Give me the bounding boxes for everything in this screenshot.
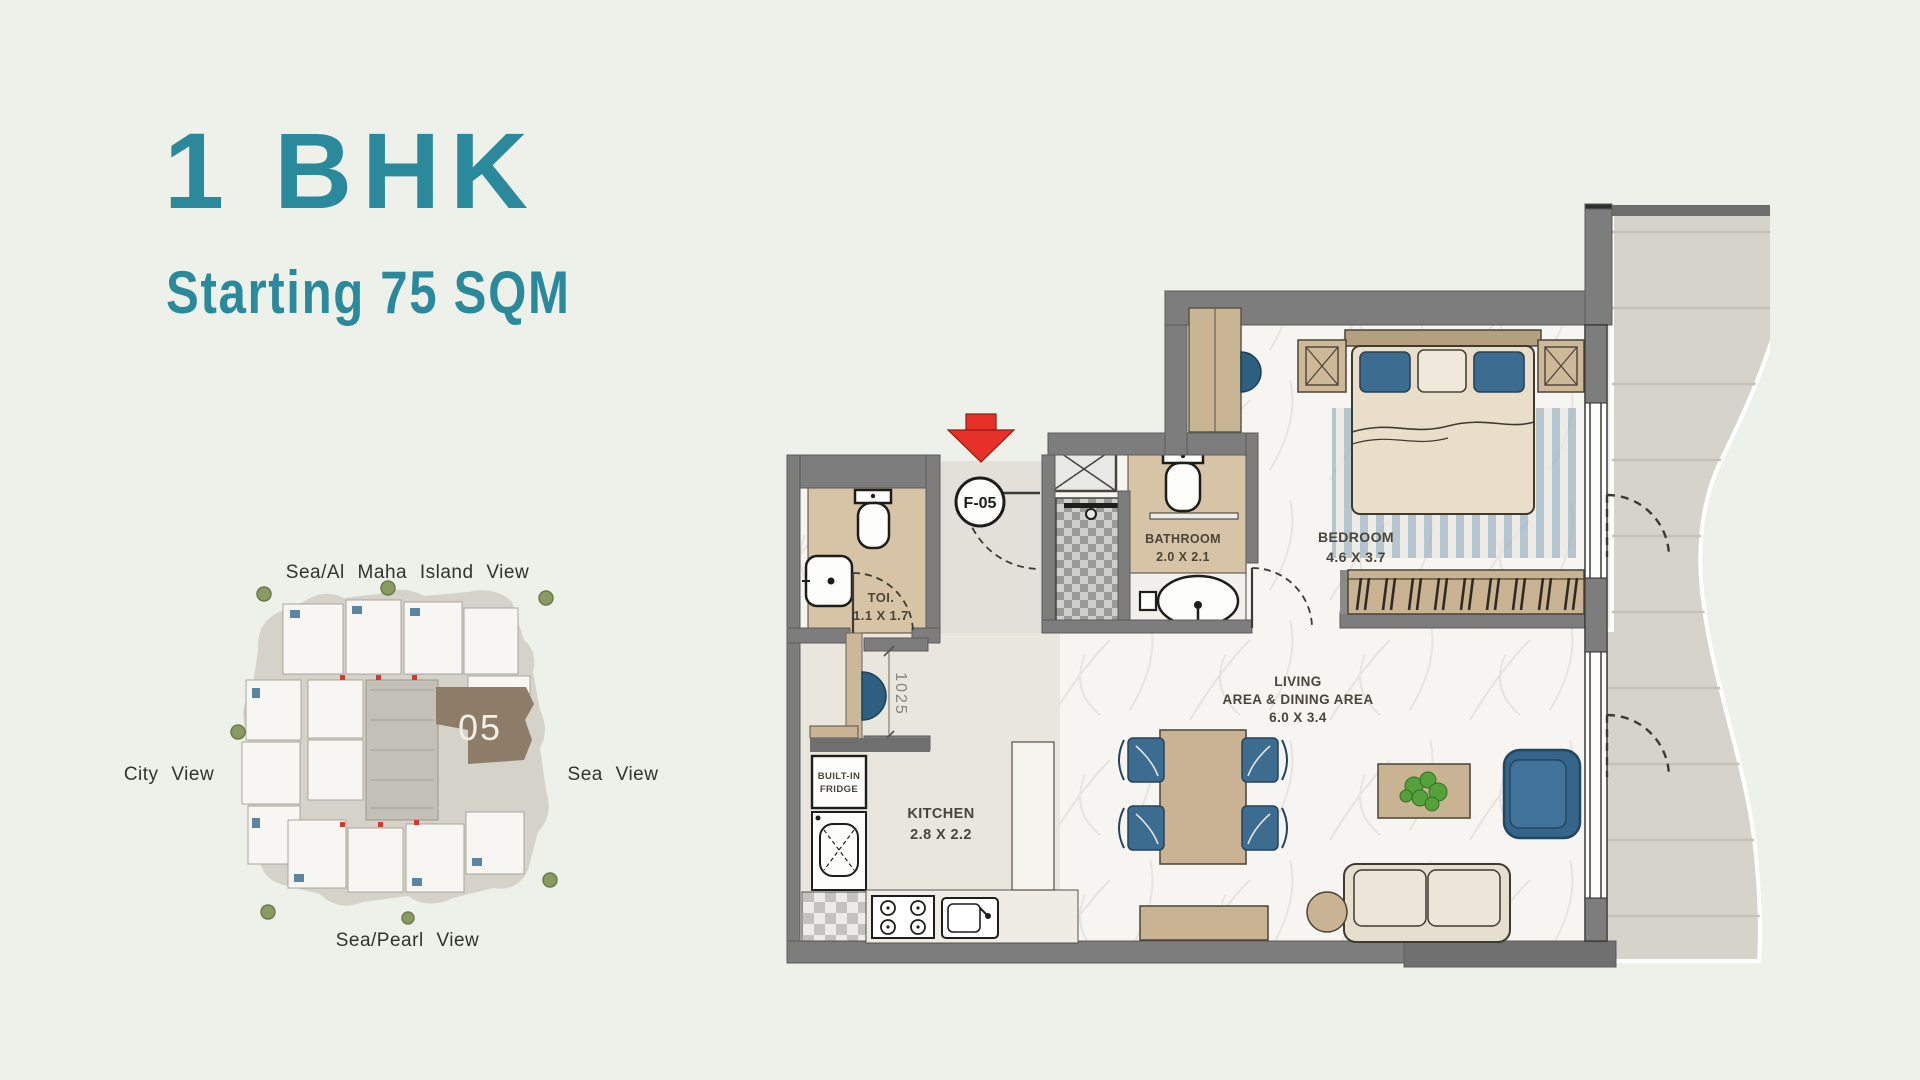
- view-label-left: City View: [104, 764, 234, 786]
- bed-pillow-left: [1360, 352, 1410, 392]
- bathroom-toilet-bowl: [1166, 463, 1200, 511]
- toi-toilet-bowl: [858, 503, 889, 548]
- tv-console: [1140, 906, 1268, 940]
- shower: [1056, 498, 1126, 628]
- floor-plan-brochure: 1 BHK Starting 75 SQM Sea/Al Maha Island…: [0, 0, 1920, 1080]
- bathroom-dim: 2.0 X 2.1: [1156, 550, 1210, 564]
- stove: [872, 896, 934, 938]
- unit-label: F-05: [964, 495, 997, 512]
- wardrobe: [1340, 570, 1584, 614]
- washing-machine: [812, 812, 866, 890]
- kitchen-counter-top: [810, 738, 930, 752]
- living-dim: 6.0 X 3.4: [1269, 710, 1327, 725]
- floor-plan: 1025 BUILT-IN FRIDGE: [780, 200, 1770, 975]
- kitchen-label: KITCHEN: [907, 806, 974, 822]
- kitchen-sink: [942, 898, 998, 938]
- coffee-table: [1378, 764, 1470, 818]
- bathroom-basin-tap: [1140, 592, 1156, 610]
- bathroom-shelf: [1150, 513, 1238, 519]
- fridge-label-line2: FRIDGE: [820, 784, 858, 795]
- entry-arrow-shaft: [966, 414, 996, 430]
- nightstand-right: [1538, 340, 1584, 392]
- side-table: [1307, 892, 1347, 932]
- page-title: 1 BHK: [164, 108, 538, 233]
- page-subtitle: Starting 75 SQM: [166, 258, 571, 327]
- key-plan: 05: [228, 580, 573, 925]
- opening-dimension: 1025: [892, 672, 909, 716]
- bedroom-label: BEDROOM: [1318, 529, 1394, 545]
- armchair: [1504, 750, 1580, 838]
- kitchen-tile-floor: [802, 892, 866, 941]
- sofa: [1344, 864, 1510, 942]
- living-label-line2: AREA & DINING AREA: [1223, 692, 1374, 707]
- key-plan-unit-number: 05: [458, 707, 502, 748]
- bed-pillow-center: [1418, 350, 1466, 392]
- built-in-fridge: [812, 756, 866, 808]
- kitchen-island: [1012, 742, 1054, 890]
- nightstand-left: [1298, 340, 1346, 392]
- living-label-line1: LIVING: [1274, 674, 1321, 689]
- glazing-wall: [1585, 325, 1607, 941]
- bedroom-dim: 4.6 X 3.7: [1326, 549, 1386, 565]
- bed-pillow-right: [1474, 352, 1524, 392]
- terrace-top-parapet: [1612, 205, 1770, 216]
- kitchen-dim: 2.8 X 2.2: [910, 827, 972, 843]
- view-label-bottom: Sea/Pearl View: [320, 930, 495, 952]
- bathroom-label: BATHROOM: [1145, 532, 1221, 546]
- toi-label: TOI.: [868, 590, 895, 605]
- shower-head: [1064, 503, 1118, 508]
- fridge-label-line1: BUILT-IN: [818, 771, 861, 782]
- bed-headboard: [1345, 330, 1541, 346]
- toi-dim: 1.1 X 1.7: [853, 608, 909, 623]
- entry-arrow-head: [948, 430, 1014, 462]
- kitchen-shelf: [810, 726, 858, 738]
